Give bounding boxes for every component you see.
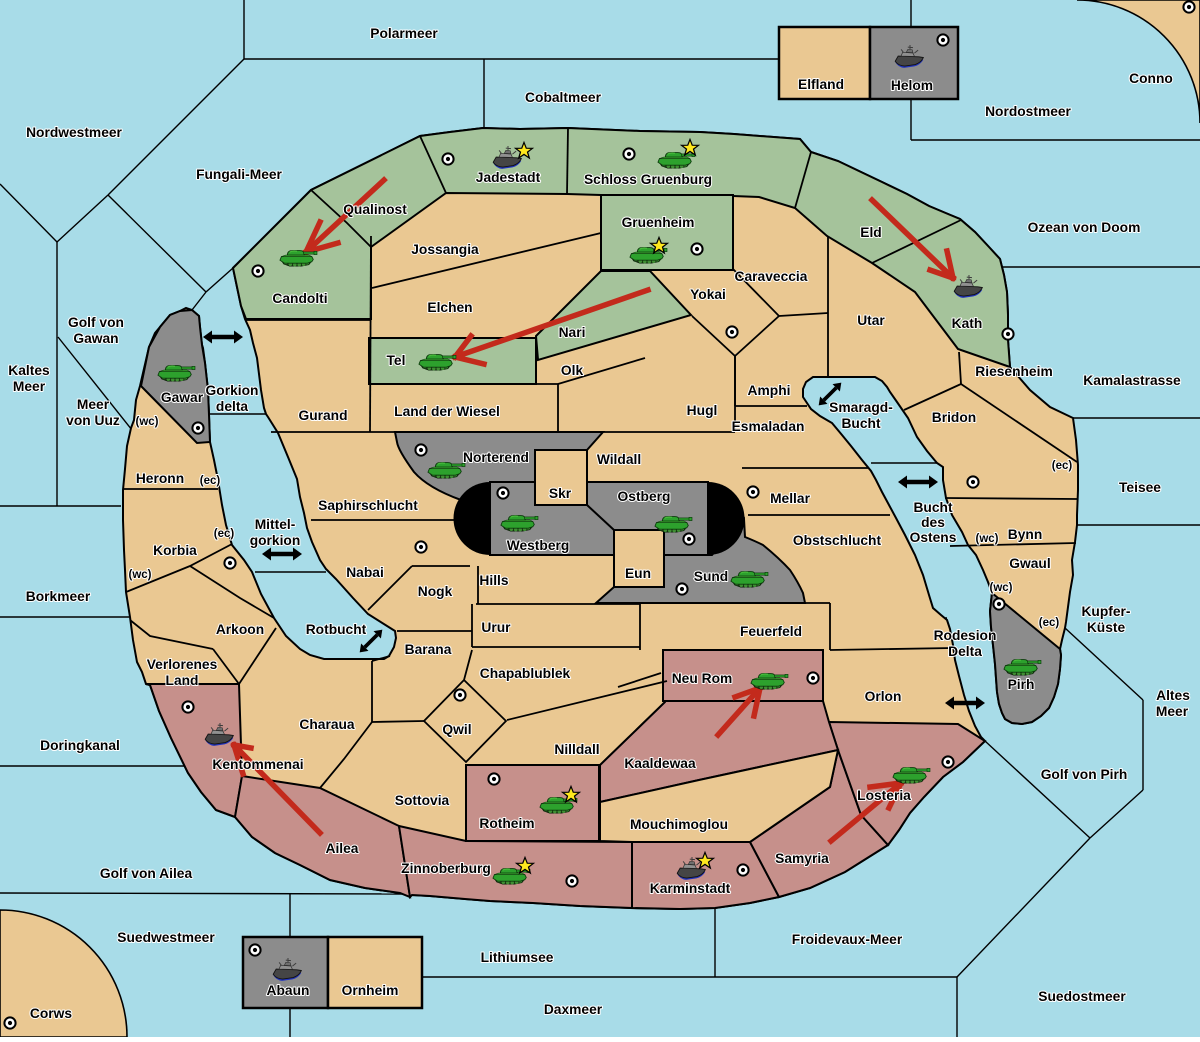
svg-text:Meer: Meer xyxy=(77,397,110,412)
svg-text:Tel: Tel xyxy=(387,353,406,368)
svg-text:Nari: Nari xyxy=(559,325,586,340)
svg-text:Ostens: Ostens xyxy=(910,530,957,545)
svg-text:Borkmeer: Borkmeer xyxy=(26,589,91,604)
svg-text:Ostberg: Ostberg xyxy=(618,489,671,504)
svg-text:Conno: Conno xyxy=(1129,71,1173,86)
svg-text:Yokai: Yokai xyxy=(690,287,726,302)
svg-text:(wc): (wc) xyxy=(976,533,999,545)
svg-text:Qualinost: Qualinost xyxy=(343,202,407,217)
svg-text:Rotbucht: Rotbucht xyxy=(306,622,367,637)
svg-text:Hugl: Hugl xyxy=(687,403,718,418)
svg-text:Gurand: Gurand xyxy=(298,408,347,423)
svg-text:Ozean von Doom: Ozean von Doom xyxy=(1028,220,1141,235)
svg-text:Doringkanal: Doringkanal xyxy=(40,738,120,753)
svg-text:Altes: Altes xyxy=(1156,688,1190,703)
svg-text:Barana: Barana xyxy=(405,642,452,657)
svg-text:gorkion: gorkion xyxy=(250,533,301,548)
svg-text:Urur: Urur xyxy=(481,620,511,635)
svg-text:Korbia: Korbia xyxy=(153,543,197,558)
svg-text:Suedostmeer: Suedostmeer xyxy=(1038,989,1126,1004)
svg-text:Bynn: Bynn xyxy=(1008,527,1043,542)
svg-text:Gawan: Gawan xyxy=(73,331,118,346)
svg-text:Chapablublek: Chapablublek xyxy=(480,666,571,681)
svg-text:Kath: Kath xyxy=(952,316,983,331)
svg-text:Gorkion: Gorkion xyxy=(206,383,259,398)
svg-text:Karminstadt: Karminstadt xyxy=(650,881,731,896)
svg-text:Delta: Delta xyxy=(948,644,982,659)
svg-text:(ec): (ec) xyxy=(1052,460,1073,472)
svg-text:Teisee: Teisee xyxy=(1119,480,1161,495)
svg-text:(ec): (ec) xyxy=(214,528,235,540)
svg-text:Esmaladan: Esmaladan xyxy=(732,419,805,434)
svg-text:(ec): (ec) xyxy=(200,475,221,487)
svg-text:Kaltes: Kaltes xyxy=(8,363,50,378)
svg-text:Riesenheim: Riesenheim xyxy=(975,364,1052,379)
svg-text:Sund: Sund xyxy=(694,569,729,584)
svg-text:Orlon: Orlon xyxy=(865,689,902,704)
svg-text:Gwaul: Gwaul xyxy=(1009,556,1050,571)
svg-text:(wc): (wc) xyxy=(990,582,1013,594)
svg-text:Smaragd-: Smaragd- xyxy=(829,400,893,415)
svg-text:Elfland: Elfland xyxy=(798,77,844,92)
svg-text:Arkoon: Arkoon xyxy=(216,622,264,637)
svg-text:Küste: Küste xyxy=(1087,620,1126,635)
svg-text:Losteria: Losteria xyxy=(857,788,911,803)
svg-text:Neu Rom: Neu Rom xyxy=(672,671,733,686)
svg-text:delta: delta xyxy=(216,399,249,414)
svg-text:Land: Land xyxy=(166,673,199,688)
svg-text:Saphirschlucht: Saphirschlucht xyxy=(318,498,418,513)
svg-text:Charaua: Charaua xyxy=(299,717,355,732)
svg-text:Caraveccia: Caraveccia xyxy=(735,269,808,284)
svg-text:(ec): (ec) xyxy=(1039,617,1060,629)
svg-text:Norterend: Norterend xyxy=(463,450,529,465)
svg-text:Kaaldewaa: Kaaldewaa xyxy=(624,756,696,771)
svg-text:Westberg: Westberg xyxy=(507,538,570,553)
svg-text:Amphi: Amphi xyxy=(748,383,791,398)
svg-text:Zinnoberburg: Zinnoberburg xyxy=(401,861,491,876)
svg-text:Meer: Meer xyxy=(1156,704,1189,719)
svg-text:Ailea: Ailea xyxy=(326,841,359,856)
svg-text:Nordostmeer: Nordostmeer xyxy=(985,104,1071,119)
svg-text:Golf von Ailea: Golf von Ailea xyxy=(100,866,193,881)
svg-text:Nilldall: Nilldall xyxy=(554,742,599,757)
svg-text:(wc): (wc) xyxy=(129,569,152,581)
svg-text:von Uuz: von Uuz xyxy=(66,413,120,428)
svg-text:Daxmeer: Daxmeer xyxy=(544,1002,603,1017)
svg-text:Eld: Eld xyxy=(860,225,881,240)
svg-text:Mouchimoglou: Mouchimoglou xyxy=(630,817,728,832)
svg-text:Rotheim: Rotheim xyxy=(479,816,534,831)
svg-text:Eun: Eun xyxy=(625,566,651,581)
svg-text:Golf von Pirh: Golf von Pirh xyxy=(1041,767,1128,782)
svg-text:Nabai: Nabai xyxy=(346,565,384,580)
svg-text:Elchen: Elchen xyxy=(427,300,472,315)
svg-text:Bucht: Bucht xyxy=(913,500,952,515)
svg-text:Land der Wiesel: Land der Wiesel xyxy=(394,404,500,419)
svg-text:Sottovia: Sottovia xyxy=(395,793,450,808)
svg-text:Schloss Gruenburg: Schloss Gruenburg xyxy=(584,172,712,187)
svg-text:Kamalastrasse: Kamalastrasse xyxy=(1083,373,1181,388)
svg-text:Cobaltmeer: Cobaltmeer xyxy=(525,90,602,105)
svg-text:Mittel-: Mittel- xyxy=(255,517,296,532)
svg-text:Jossangia: Jossangia xyxy=(411,242,479,257)
svg-text:des: des xyxy=(921,515,945,530)
svg-text:Nogk: Nogk xyxy=(418,584,453,599)
svg-text:Mellar: Mellar xyxy=(770,491,811,506)
svg-text:Ornheim: Ornheim xyxy=(342,983,399,998)
svg-text:Rodesion: Rodesion xyxy=(934,628,997,643)
svg-text:Bridon: Bridon xyxy=(932,410,976,425)
svg-text:Nordwestmeer: Nordwestmeer xyxy=(26,125,122,140)
svg-text:Jadestadt: Jadestadt xyxy=(476,170,541,185)
svg-text:Feuerfeld: Feuerfeld xyxy=(740,624,802,639)
svg-text:Helom: Helom xyxy=(891,78,933,93)
svg-text:Froidevaux-Meer: Froidevaux-Meer xyxy=(792,932,903,947)
svg-text:(wc): (wc) xyxy=(136,416,159,428)
svg-text:Qwil: Qwil xyxy=(442,722,471,737)
svg-text:Obstschlucht: Obstschlucht xyxy=(793,533,882,548)
svg-text:Abaun: Abaun xyxy=(267,983,310,998)
svg-text:Verlorenes: Verlorenes xyxy=(147,657,218,672)
svg-text:Olk: Olk xyxy=(561,363,584,378)
svg-text:Gawar: Gawar xyxy=(161,390,204,405)
svg-text:Gruenheim: Gruenheim xyxy=(622,215,695,230)
svg-text:Pirh: Pirh xyxy=(1008,677,1035,692)
svg-text:Kentommenai: Kentommenai xyxy=(212,757,303,772)
svg-text:Corws: Corws xyxy=(30,1006,72,1021)
svg-text:Lithiumsee: Lithiumsee xyxy=(481,950,554,965)
svg-text:Skr: Skr xyxy=(549,486,572,501)
svg-text:Suedwestmeer: Suedwestmeer xyxy=(117,930,215,945)
svg-text:Heronn: Heronn xyxy=(136,471,184,486)
svg-text:Golf von: Golf von xyxy=(68,315,124,330)
svg-text:Bucht: Bucht xyxy=(841,416,880,431)
svg-text:Polarmeer: Polarmeer xyxy=(370,26,438,41)
svg-text:Hills: Hills xyxy=(479,573,508,588)
svg-text:Meer: Meer xyxy=(13,379,46,394)
svg-text:Samyria: Samyria xyxy=(775,851,829,866)
svg-text:Kupfer-: Kupfer- xyxy=(1081,604,1130,619)
svg-text:Wildall: Wildall xyxy=(597,452,641,467)
svg-text:Candolti: Candolti xyxy=(272,291,327,306)
svg-text:Utar: Utar xyxy=(857,313,885,328)
svg-text:Fungali-Meer: Fungali-Meer xyxy=(196,167,282,182)
